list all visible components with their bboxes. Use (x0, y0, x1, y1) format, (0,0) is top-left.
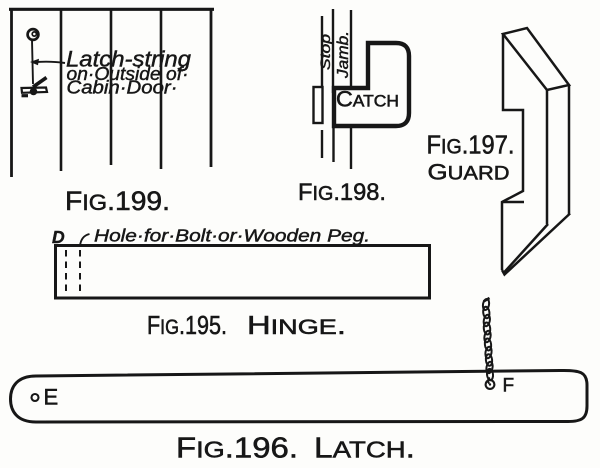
svg-text:Cabin·Door·: Cabin·Door· (67, 77, 178, 98)
svg-text:D: D (52, 227, 65, 247)
svg-text:FIG.198.: FIG.198. (298, 179, 386, 206)
svg-text:Hole·for·Bolt·or·Wooden Peg.: Hole·for·Bolt·or·Wooden Peg. (94, 226, 370, 246)
svg-text:Jamb.: Jamb. (335, 31, 352, 79)
svg-text:FIG.199.: FIG.199. (65, 186, 170, 216)
svg-text:F: F (503, 376, 515, 397)
svg-text:HINGE.: HINGE. (247, 310, 346, 340)
svg-text:GUARD: GUARD (428, 160, 510, 185)
svg-text:E: E (44, 385, 59, 410)
svg-text:FIG.196.: FIG.196. (176, 433, 298, 465)
svg-text:FIG.197.: FIG.197. (427, 130, 515, 160)
svg-text:Stop: Stop (318, 33, 333, 70)
svg-text:FIG.195.: FIG.195. (147, 310, 227, 340)
svg-text:LATCH.: LATCH. (314, 433, 415, 465)
